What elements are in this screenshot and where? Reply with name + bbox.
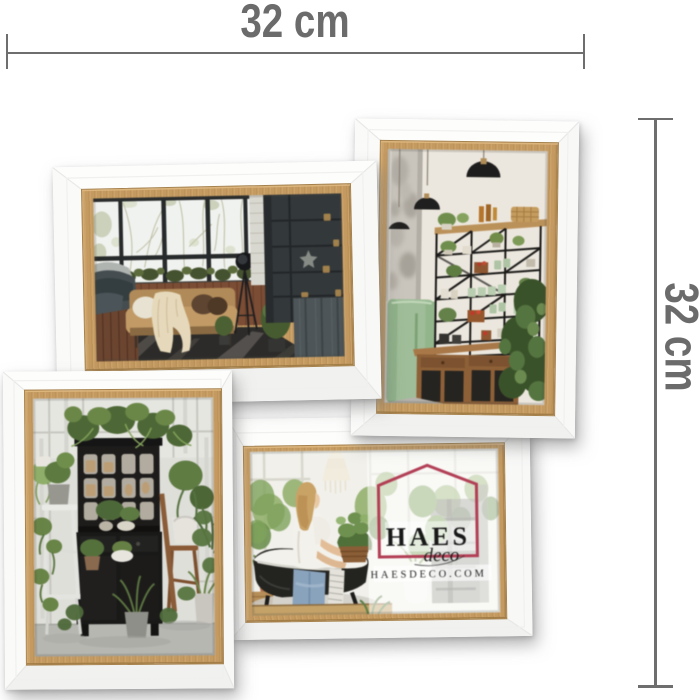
svg-text:HAESDECO.COM: HAESDECO.COM — [371, 569, 487, 582]
svg-text:deco: deco — [423, 545, 459, 566]
